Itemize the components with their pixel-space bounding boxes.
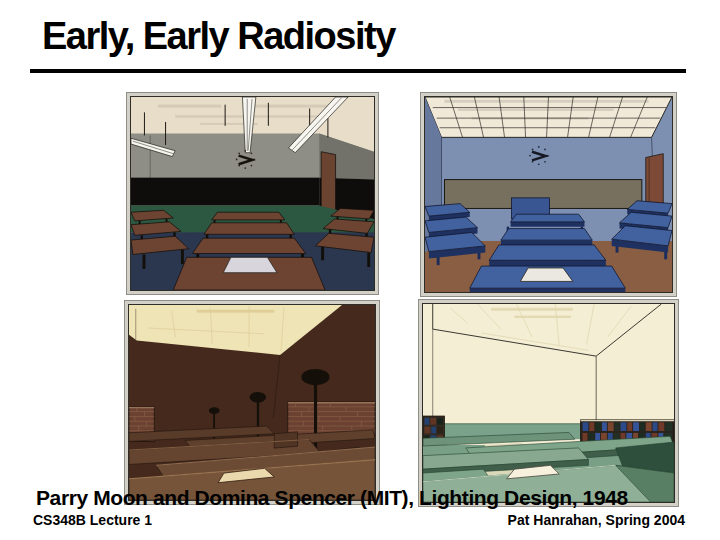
classroom-illustration-brown <box>128 304 376 501</box>
figure-classroom-fluorescent <box>126 92 379 295</box>
page-title: Early, Early Radiosity <box>42 16 395 58</box>
title-underline <box>30 69 686 73</box>
footer-author: Pat Hanrahan, Spring 2004 <box>508 512 685 528</box>
figure-caption: Parry Moon and Domina Spencer (MIT), Lig… <box>36 486 628 510</box>
figure-classroom-uplights <box>124 300 380 505</box>
footer-course: CS348B Lecture 1 <box>33 512 152 528</box>
bleedthrough-text <box>197 310 274 313</box>
blackboard <box>131 178 319 206</box>
classroom-illustration-gray <box>130 96 375 291</box>
paper <box>520 268 573 281</box>
figure-classroom-luminous-ceiling <box>420 92 677 297</box>
classroom-illustration-blue <box>424 96 673 293</box>
lecture-slide: Early, Early Radiosity <box>0 0 720 540</box>
paper <box>223 257 277 272</box>
figure-classroom-bright <box>418 299 679 507</box>
classroom-illustration-cream <box>422 303 675 503</box>
slide-footer: CS348B Lecture 1 Pat Hanrahan, Spring 20… <box>33 512 685 528</box>
books-row-1 <box>583 422 673 431</box>
